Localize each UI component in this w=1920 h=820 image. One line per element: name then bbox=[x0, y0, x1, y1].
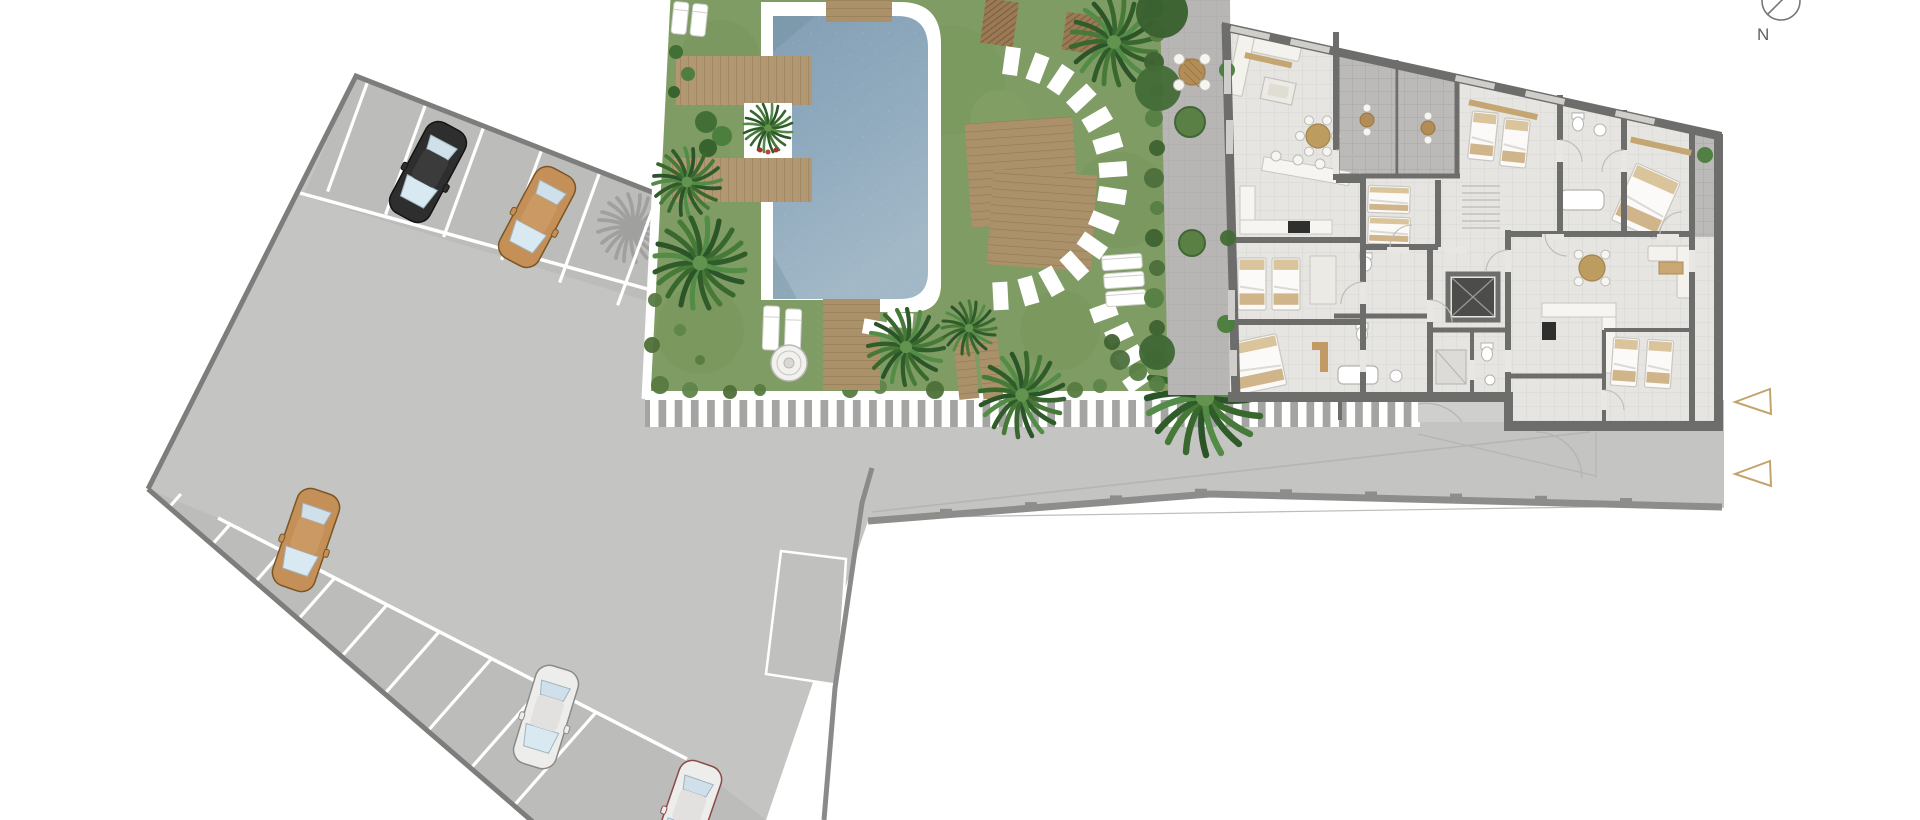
svg-text:N: N bbox=[1757, 25, 1769, 44]
